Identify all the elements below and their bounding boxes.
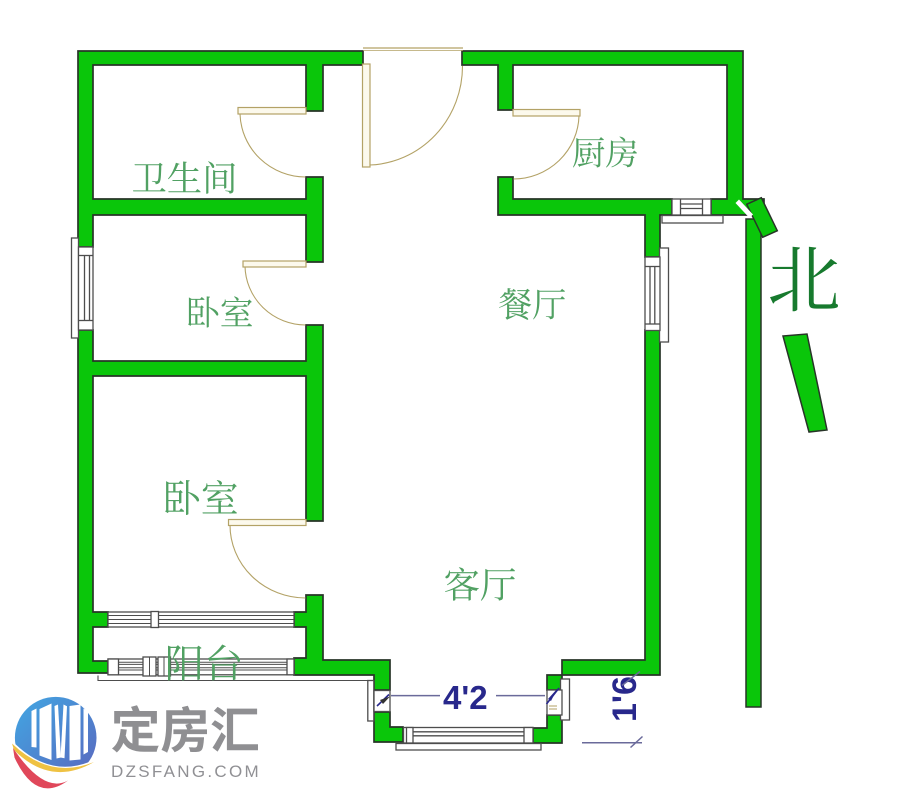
svg-text:4'2: 4'2 bbox=[443, 679, 488, 716]
svg-text:DZSFANG.COM: DZSFANG.COM bbox=[111, 762, 261, 781]
